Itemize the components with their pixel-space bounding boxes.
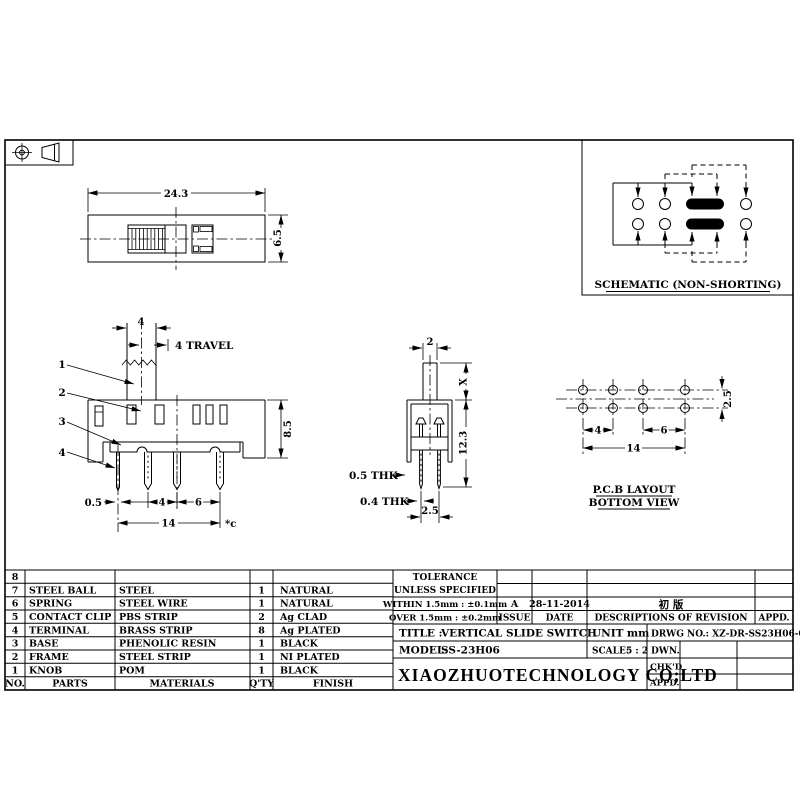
unit-label: UNIT : [592,628,631,640]
scale-label: SCALE: [592,647,629,657]
part-finish: BLACK [280,665,319,676]
model-value: SS-23H06 [441,645,500,657]
descriptions-label: DESCRIPTIONS OF REVISION [594,614,747,624]
pcb-layout-view: 4 6 14 2.5 P.C.B LAYOUT BOTTOM VIEW [556,376,734,509]
parts-header-no: NO. [5,679,25,690]
dim-terminal-width: 0.5 [85,498,102,509]
title-value: VERTICAL SLIDE SWITCH [440,628,597,640]
terminal-thickness-label: 0.4 THK [360,496,410,508]
dim-note: *c [225,519,236,530]
part-name: TERMINAL [29,625,89,636]
appd-label: APPD. [757,614,789,624]
frame-thickness-label: 0.5 THK [349,470,399,482]
part-qty: 2 [258,612,265,623]
parts-table: 8 7 STEEL BALL STEEL 1 NATURAL 6 SPRING … [5,572,353,690]
projection-cone-icon [42,143,59,162]
pcb-dim-row-pitch: 2.5 [723,390,734,407]
part-name: STEEL BALL [29,585,96,596]
pcb-layout-subtitle: BOTTOM VIEW [589,497,680,509]
appd2-label: APPD. [649,679,679,689]
part-row-no: 7 [12,585,19,596]
projection-symbol [5,140,73,165]
pcb-layout-title: P.C.B LAYOUT [593,484,676,496]
dim-row-pitch: 2.5 [421,506,438,517]
schematic-dashed-links [665,165,746,262]
tolerance-title: TOLERANCE [413,573,478,583]
dim-top-width: 24.3 [164,189,188,200]
part-finish: NATURAL [280,599,333,610]
contact-bridge-top [686,199,724,210]
pcb-dim-span: 14 [627,444,641,455]
schematic-arrows [638,183,746,245]
tolerance-subtitle: UNLESS SPECIFIED [394,586,496,596]
part-finish: BLACK [280,639,319,650]
part-material: BRASS STRIP [119,625,193,636]
part-row-no: 6 [12,599,19,610]
part-finish: Ag PLATED [279,625,341,636]
part-qty: 8 [258,625,265,636]
part-row-no: 1 [12,665,19,676]
part-material: PHENOLIC RESIN [119,639,217,650]
chkd-label: CHK'D [650,663,683,673]
part-row-no: 4 [12,625,19,636]
dim-top-height: 6.5 [273,229,284,246]
parts-header-qty: Q'TY [249,679,274,690]
dim-span: 14 [162,519,176,530]
issue-value: A [510,599,519,610]
leader-2-frame: 2 [58,387,65,399]
pcb-dim-pitch-a: 4 [595,426,602,437]
leader-4-terminal: 4 [58,447,65,459]
part-name: FRAME [29,652,69,663]
dim-body-height: 8.5 [283,420,294,437]
revision-value: 初 版 [659,598,684,611]
side-view: 2 X 12.3 0.5 THK 0.4 THK 2.5 [349,337,472,523]
leader-3-base: 3 [58,416,65,428]
leader-1-knob: 1 [58,359,65,371]
part-finish: NI PLATED [280,652,340,663]
dim-pitch-b: 6 [195,498,202,509]
top-view: 24.3 6.5 [80,187,288,271]
dim-pitch-a: 4 [159,498,166,509]
projection-target-icon [12,143,32,162]
parts-header-finish: FINISH [313,679,353,690]
part-qty: 1 [258,585,265,596]
tolerance-within: WITHIN 1.5mm : ±0.1mm [382,600,507,610]
part-qty: 1 [258,639,265,650]
part-qty: 1 [258,599,265,610]
dim-x: X [459,378,470,386]
drawing-sheet: SCHEMATIC (NON-SHORTING) [0,0,800,800]
part-material: PBS STRIP [119,612,178,623]
dim-total-height: 12.3 [459,431,470,455]
parts-header-parts: PARTS [52,679,88,690]
part-material: STEEL [119,585,154,596]
part-finish: NATURAL [280,585,333,596]
pcb-dim-pitch-b: 6 [661,426,668,437]
dim-stem-width: 2 [427,337,434,348]
part-finish: Ag CLAD [279,612,327,623]
travel-label: 4 TRAVEL [175,340,234,352]
drwg-no: DRWG NO.: XZ-DR-SS23H06-00 [651,630,800,640]
issue-label: ISSUE [499,614,531,624]
schematic-caption: SCHEMATIC (NON-SHORTING) [595,279,782,291]
part-material: STEEL STRIP [119,652,191,663]
dwn-label: DWN. [651,647,680,657]
schematic-terminals [633,199,752,230]
dim-knob-width: 4 [138,317,145,328]
scale-value: 5 : 2 [626,647,648,657]
part-qty: 1 [258,665,265,676]
part-name: CONTACT CLIP [29,612,111,623]
date-value: 28-11-2014 [529,599,590,610]
part-material: POM [119,665,145,676]
schematic-view: SCHEMATIC (NON-SHORTING) [582,140,793,295]
part-material: STEEL WIRE [119,599,188,610]
title-label: TITLE : [399,628,442,640]
part-row-no: 5 [12,612,19,623]
date-label: DATE [546,614,574,624]
front-view: 4 4 TRAVEL 1 2 3 4 8.5 0.5 4 [58,317,294,532]
part-row-no: 8 [12,572,19,583]
part-row-no: 2 [12,652,19,663]
knob-serrations [132,229,162,250]
part-qty: 1 [258,652,265,663]
tolerance-over: OVER 1.5mm : ±0.2mm [389,614,501,624]
parts-header-materials: MATERIALS [150,679,215,690]
contact-bridge-bottom [686,219,724,230]
part-name: KNOB [29,665,62,676]
part-row-no: 3 [12,639,19,650]
unit-value: mm [627,628,649,640]
part-name: BASE [29,639,59,650]
part-name: SPRING [29,599,72,610]
engineering-drawing-page: { "schematic": { "caption": "SCHEMATIC (… [0,0,800,800]
